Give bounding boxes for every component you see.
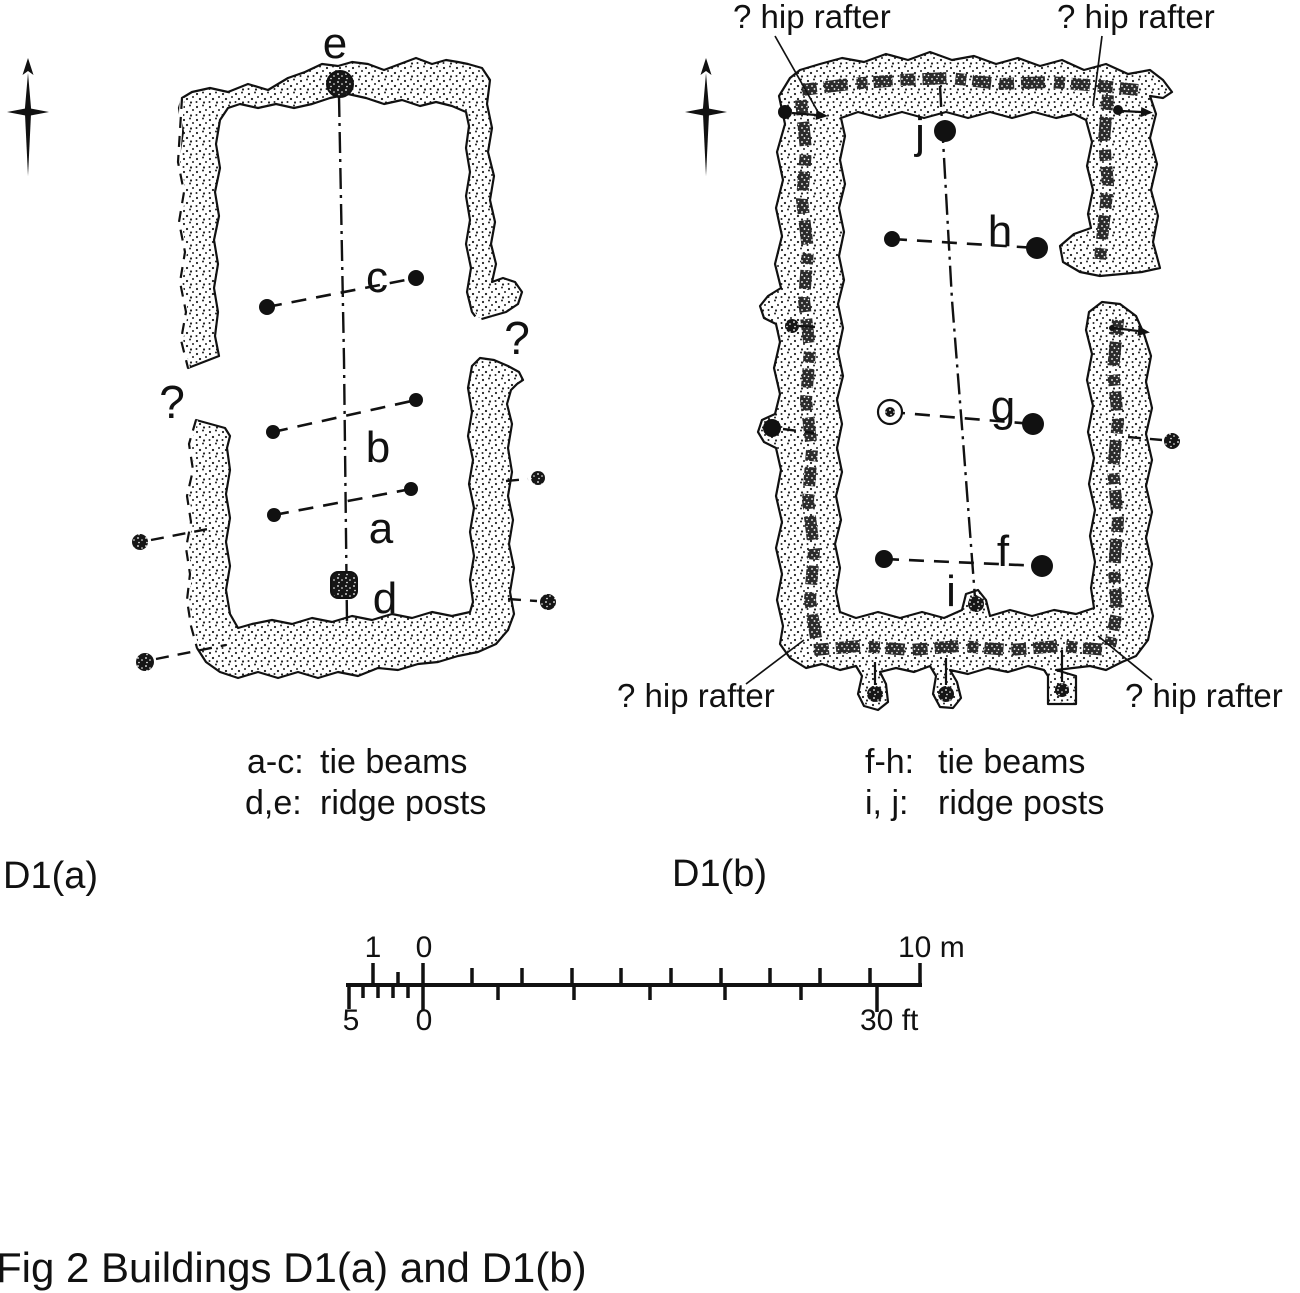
scale-feet-zero: 0	[416, 1004, 433, 1037]
post	[1113, 105, 1123, 115]
tie-beam-label-g: g	[991, 382, 1015, 431]
legend-a-row2-value: ridge posts	[320, 784, 486, 822]
building-b-walls	[758, 52, 1172, 710]
building-a-name: D1(a)	[3, 855, 98, 897]
post	[266, 425, 280, 439]
post	[136, 653, 154, 671]
post	[884, 231, 900, 247]
ridge-post-label-e: e	[323, 19, 347, 68]
post	[267, 508, 281, 522]
building-b-name: D1(b)	[672, 853, 767, 895]
scale-bar: 1 0 10 m 5 0 30 ft	[343, 931, 965, 1037]
figure-caption: Fig 2 Buildings D1(a) and D1(b)	[0, 1244, 587, 1291]
legend-a-row1-value: tie beams	[320, 743, 467, 781]
post	[531, 471, 545, 485]
building-a-upper-wall	[178, 58, 522, 368]
tie-beam-line-f	[884, 559, 1042, 566]
ridge-post-j	[934, 120, 956, 142]
ridge-axis-line	[940, 86, 975, 598]
post	[785, 319, 799, 333]
post	[409, 393, 423, 407]
legend-a-row2-key: d,e:	[245, 784, 302, 822]
post	[259, 299, 275, 315]
post	[763, 419, 781, 437]
ridge-post-label-i: i	[946, 567, 956, 616]
archaeological-plan-figure: cbaed?? hgfji? hip rafter? hip rafter? h…	[0, 0, 1300, 1293]
post	[540, 594, 556, 610]
annotation-label: ?	[504, 312, 530, 364]
post	[132, 534, 148, 550]
legend-a-row1-key: a-c:	[247, 743, 304, 781]
scale-feet-five: 5	[343, 1004, 360, 1037]
north-arrow-b	[685, 58, 727, 176]
tie-beam-label-b: b	[366, 423, 390, 472]
exterior-post-line	[1122, 111, 1141, 112]
ridge-post-e	[327, 71, 353, 97]
post	[408, 270, 424, 286]
post	[404, 482, 418, 496]
ridge-axis-line	[339, 96, 347, 622]
post	[1109, 325, 1115, 331]
scale-bar-ticks	[349, 963, 920, 1012]
figure-page: cbaed?? hgfji? hip rafter? hip rafter? h…	[0, 0, 1300, 1293]
north-arrow-a	[7, 58, 49, 176]
post	[1055, 683, 1069, 697]
legend-building-a: a-c: tie beams d,e: ridge posts	[245, 743, 486, 822]
tie-beam-line-h	[892, 239, 1037, 248]
annotation-label: ? hip rafter	[617, 677, 775, 714]
post	[938, 686, 954, 702]
legend-building-b: f-h: tie beams i, j: ridge posts	[865, 743, 1104, 822]
post	[778, 105, 792, 119]
building-a-lower-wall	[186, 358, 523, 678]
tie-beam-label-c: c	[366, 253, 388, 302]
post	[1026, 237, 1048, 259]
annotation-label: ? hip rafter	[733, 0, 891, 35]
legend-b-row2-value: ridge posts	[938, 784, 1104, 822]
annotation-label: ?	[159, 376, 185, 428]
post	[1164, 433, 1180, 449]
ridge-post-label-j: j	[913, 109, 925, 158]
tie-beam-label-h: h	[988, 207, 1012, 256]
scale-meters-max: 10 m	[898, 931, 965, 964]
post	[1022, 413, 1044, 435]
post	[885, 407, 895, 417]
exterior-post-line	[799, 326, 815, 327]
post	[1031, 555, 1053, 577]
annotation-label: ? hip rafter	[1057, 0, 1215, 35]
ridge-post-d	[331, 572, 357, 598]
tie-beam-label-a: a	[369, 504, 394, 553]
legend-b-row2-key: i, j:	[865, 784, 908, 822]
ridge-post-i	[968, 596, 984, 612]
ridge-post-label-d: d	[373, 574, 397, 623]
annotation-label: ? hip rafter	[1125, 677, 1283, 714]
scale-feet-max: 30 ft	[860, 1004, 919, 1037]
tie-beam-label-f: f	[997, 527, 1010, 576]
scale-meters-zero: 0	[416, 931, 433, 964]
legend-b-row1-value: tie beams	[938, 743, 1085, 781]
post	[867, 686, 883, 702]
legend-b-row1-key: f-h:	[865, 743, 914, 781]
scale-meters-one: 1	[365, 931, 382, 964]
post	[875, 550, 893, 568]
